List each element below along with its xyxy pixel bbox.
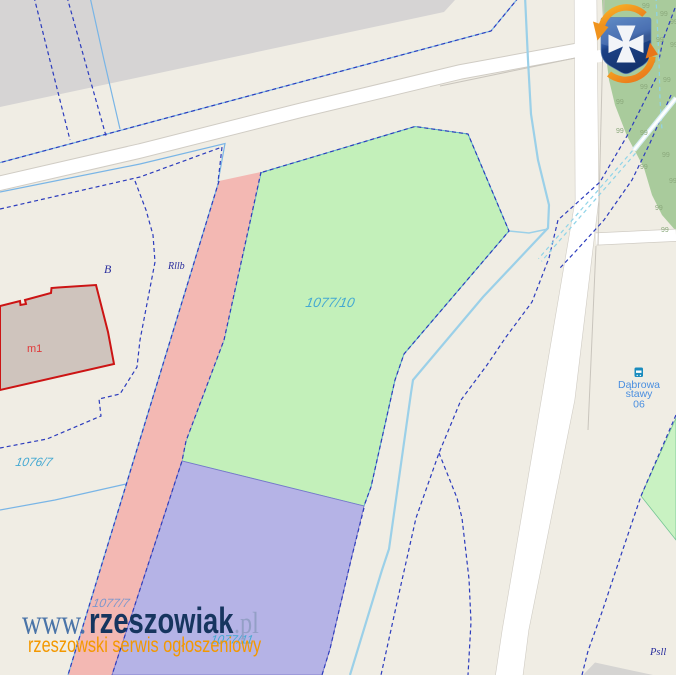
svg-text:99: 99 [642, 3, 650, 10]
svg-text:99: 99 [640, 130, 648, 137]
svg-text:99: 99 [656, 37, 664, 44]
svg-text:B: B [104, 262, 112, 276]
svg-text:99: 99 [616, 128, 624, 135]
svg-text:99: 99 [669, 178, 676, 185]
svg-text:99: 99 [670, 19, 676, 26]
svg-text:Psll: Psll [649, 647, 666, 658]
svg-text:99: 99 [640, 164, 648, 171]
svg-text:1077/10: 1077/10 [304, 295, 356, 310]
svg-text:99: 99 [670, 42, 676, 49]
svg-text:1076/7: 1076/7 [14, 455, 54, 469]
svg-text:99: 99 [661, 227, 669, 234]
svg-text:99: 99 [616, 99, 624, 106]
svg-text:99: 99 [663, 77, 671, 84]
svg-text:06: 06 [633, 399, 645, 411]
svg-text:Rllb: Rllb [167, 261, 185, 272]
svg-text:rzeszowski serwis ogłoszeniowy: rzeszowski serwis ogłoszeniowy [28, 634, 262, 658]
svg-text:m1: m1 [27, 343, 42, 355]
svg-text:99: 99 [660, 11, 668, 18]
svg-text:99: 99 [662, 152, 670, 159]
svg-text:99: 99 [640, 84, 648, 91]
svg-text:99: 99 [655, 205, 663, 212]
